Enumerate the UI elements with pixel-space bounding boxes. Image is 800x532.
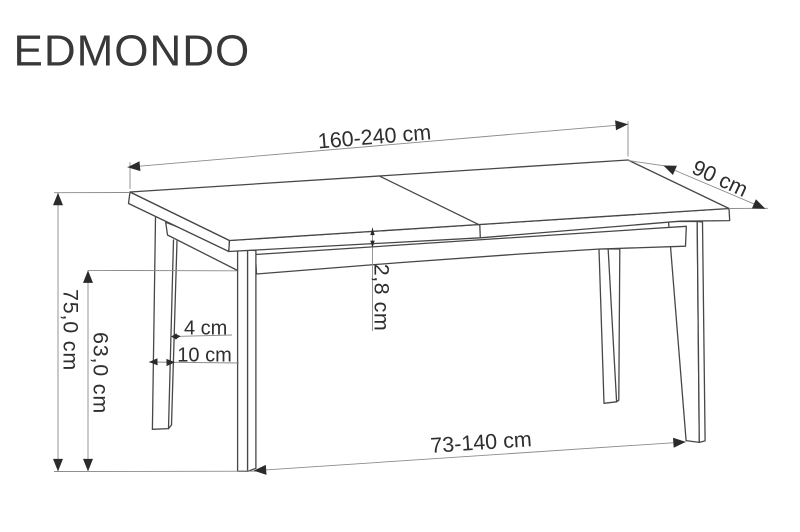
svg-text:10 cm: 10 cm <box>177 345 231 367</box>
svg-text:EDMONDO: EDMONDO <box>14 27 251 76</box>
svg-text:4 cm: 4 cm <box>184 318 227 340</box>
svg-text:75,0 cm: 75,0 cm <box>58 289 82 371</box>
svg-text:2,8 cm: 2,8 cm <box>369 264 393 332</box>
svg-text:63,0 cm: 63,0 cm <box>89 332 113 414</box>
